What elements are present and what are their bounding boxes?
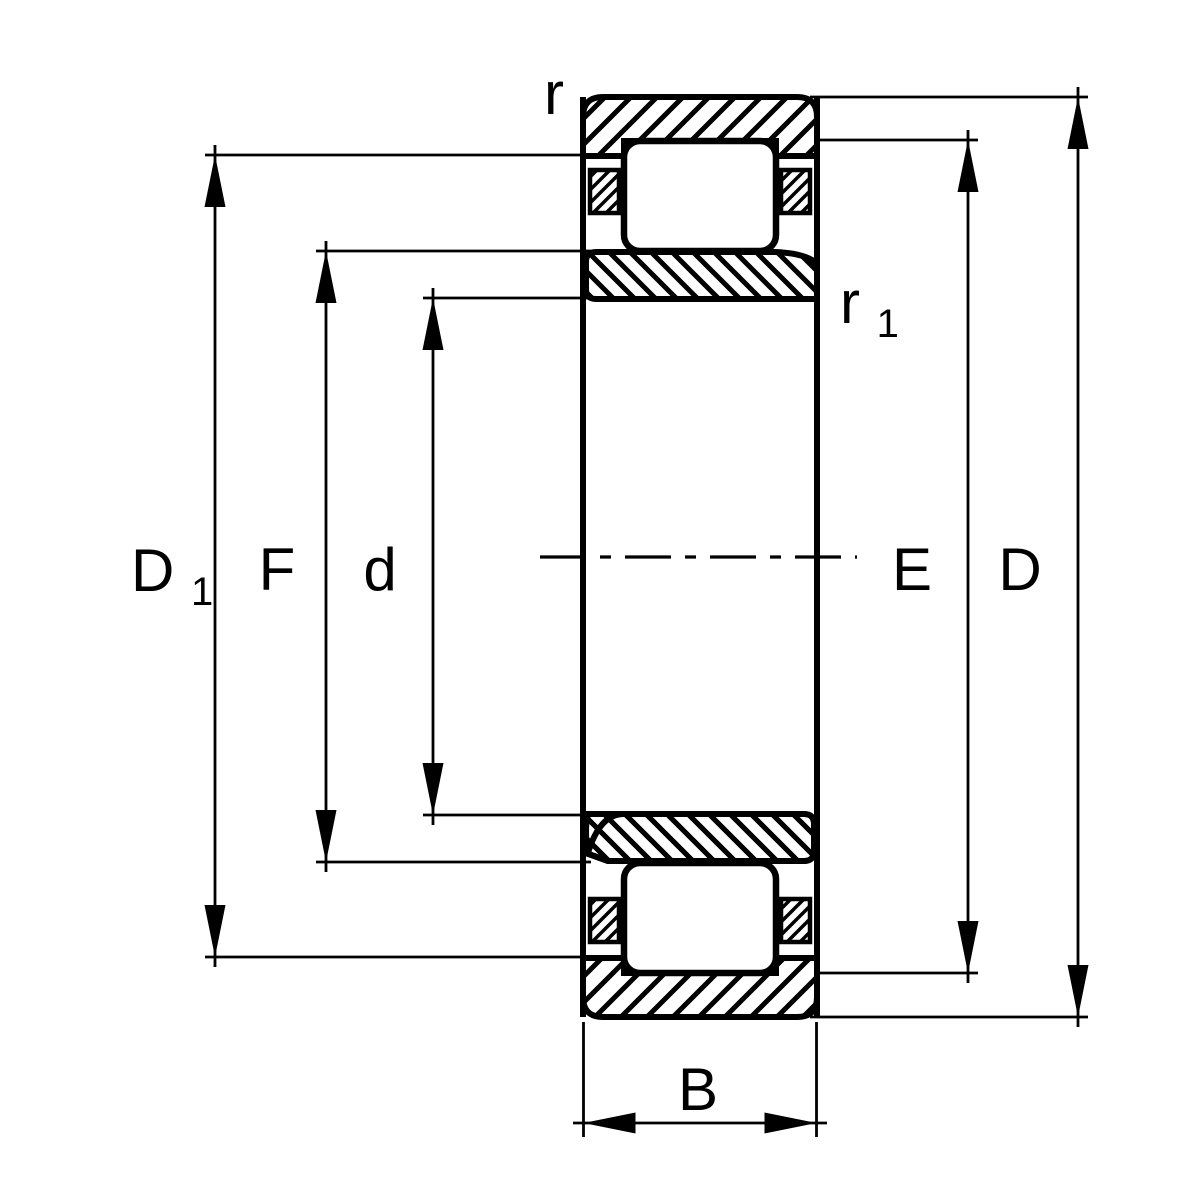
cage-bar-bottom-right xyxy=(781,899,810,942)
label-D1: D 1 xyxy=(131,537,213,614)
arrow-F-down xyxy=(316,810,337,862)
arrow-d-down xyxy=(423,763,444,815)
bearing-dimension-drawing: r r 1 D 1 F d E D B xyxy=(0,0,1200,1200)
cage-bar-top-right xyxy=(781,170,810,213)
inner-ring-bottom-band xyxy=(583,814,814,861)
label-r1: r 1 xyxy=(840,269,899,346)
label-F: F xyxy=(259,536,296,603)
label-r: r xyxy=(544,60,564,127)
arrow-D-up xyxy=(1068,97,1089,149)
label-E: E xyxy=(892,536,932,603)
arrow-D1-up xyxy=(205,155,226,207)
roller-top xyxy=(624,141,776,251)
label-D: D xyxy=(998,536,1041,603)
arrow-E-down xyxy=(958,921,979,973)
arrow-E-up xyxy=(958,140,979,192)
arrow-D-down xyxy=(1068,965,1089,1017)
arrow-d-up xyxy=(423,298,444,350)
arrow-D1-down xyxy=(205,905,226,957)
arrow-B-right xyxy=(765,1113,817,1134)
cage-bar-top-left xyxy=(590,170,619,213)
bearing-section xyxy=(583,97,817,1017)
cage-bar-bottom-left xyxy=(590,899,619,942)
label-d: d xyxy=(363,536,396,603)
dimension-D xyxy=(810,87,1089,1027)
inner-ring-top-section xyxy=(586,252,817,299)
roller-bottom xyxy=(624,863,776,973)
arrow-F-up xyxy=(316,251,337,303)
bearing-cross-section-svg: r r 1 D 1 F d E D B xyxy=(0,0,1200,1200)
label-B: B xyxy=(678,1056,718,1123)
arrow-B-left xyxy=(584,1113,636,1134)
